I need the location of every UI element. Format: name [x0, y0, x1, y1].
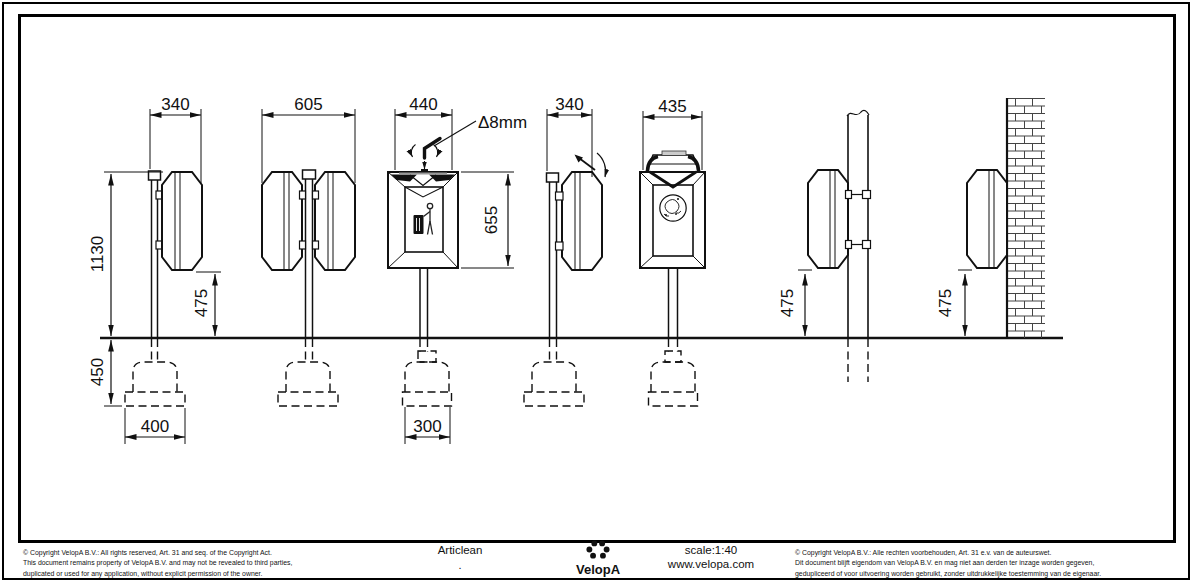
copyright-en: © Copyright VelopA B.V.: All rights rese… — [23, 548, 292, 579]
dim-label-475-wall: 475 — [936, 289, 955, 317]
dim-label-340-single: 340 — [161, 95, 189, 114]
product-note: . — [395, 559, 525, 571]
dim-label-450: 450 — [88, 358, 107, 386]
dim-label-605: 605 — [294, 95, 322, 114]
brand-name: VelopA — [566, 562, 630, 577]
view-post-single-side — [125, 171, 202, 406]
view-wall-mount — [967, 98, 1045, 338]
copyright-nl-line3: gedupliceerd of voor uitvoering worden g… — [795, 569, 1101, 579]
copyright-en-line3: duplicated or used for any application, … — [23, 569, 292, 579]
extension-lines — [104, 109, 972, 444]
page: { "views": [ {"id":"post-single-side","d… — [0, 0, 1194, 584]
copyright-en-line2: This document remains property of VelopA… — [23, 558, 292, 568]
key-size-note: Δ8mm — [478, 113, 527, 132]
dim-label-435: 435 — [658, 97, 686, 116]
velopa-logo-icon — [583, 539, 613, 561]
dim-label-400: 400 — [141, 417, 169, 436]
view-pole-mount — [808, 110, 871, 382]
dim-label-340-lid: 340 — [555, 95, 583, 114]
dim-label-475-single: 475 — [192, 289, 211, 317]
dim-label-440: 440 — [409, 95, 437, 114]
scale-block: scale:1:40 www.velopa.com — [652, 544, 770, 570]
view-front-lid-open — [640, 151, 705, 406]
dimension-lines — [111, 115, 965, 437]
key-note-leader — [434, 121, 476, 146]
technical-drawing: 340 1130 475 450 400 605 440 Δ8mm 655 30… — [0, 0, 1194, 547]
view-side-lid-open — [524, 153, 606, 406]
scale-label: scale:1:40 — [652, 544, 770, 556]
dim-label-475-pole: 475 — [778, 289, 797, 317]
product-name: Articlean — [395, 544, 525, 556]
website-label: www.velopa.com — [652, 558, 770, 570]
view-post-double-side — [262, 170, 355, 406]
brand-block: VelopA — [566, 539, 630, 577]
product-title-block: Articlean . — [395, 544, 525, 571]
copyright-nl-line1: © Copyright VelopA B.V.: Alle rechten vo… — [795, 548, 1101, 558]
dim-label-655: 655 — [482, 206, 501, 234]
copyright-nl-line2: Dit document blijft eigendom van VelopA … — [795, 558, 1101, 568]
view-front-closed — [388, 121, 476, 406]
copyright-en-line1: © Copyright VelopA B.V.: All rights rese… — [23, 548, 292, 558]
allen-key-icon — [411, 139, 440, 173]
brick-wall — [1007, 98, 1045, 338]
dim-label-1130: 1130 — [88, 236, 107, 273]
dim-label-300: 300 — [413, 417, 441, 436]
copyright-nl: © Copyright VelopA B.V.: Alle rechten vo… — [795, 548, 1101, 579]
